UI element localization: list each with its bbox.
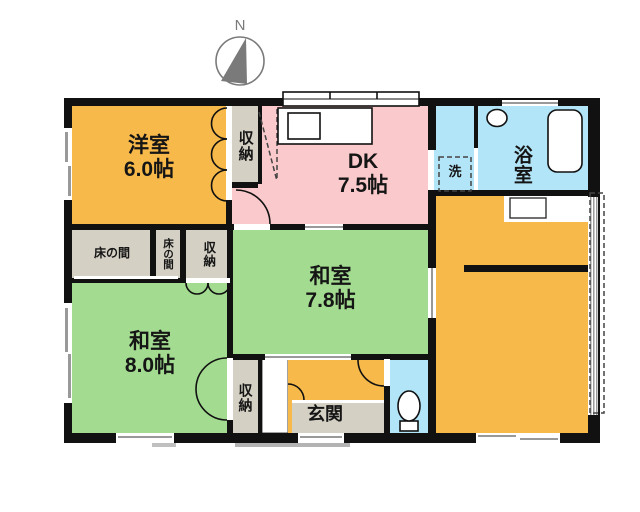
room-size: 8.0帖 xyxy=(125,354,175,377)
room-size: 7.5帖 xyxy=(338,174,388,197)
right-room-counter-sink xyxy=(510,198,546,218)
room-name: 和室 xyxy=(310,265,352,288)
room-name: 洋室 xyxy=(128,134,170,157)
room-name: DK xyxy=(348,150,378,173)
label-washitsu-78: 和室 7.8帖 xyxy=(232,265,429,313)
label-dk: DK 7.5帖 xyxy=(288,150,438,198)
label-washer: 洗 xyxy=(439,165,471,180)
compass-north-label: N xyxy=(225,17,255,34)
label-bathroom: 浴室 xyxy=(505,138,537,192)
vent xyxy=(152,443,176,447)
room-name: 和室 xyxy=(129,330,171,353)
genkan-step xyxy=(292,400,384,403)
dk-washitsu-door-opening xyxy=(234,224,270,230)
label-storage-bottom: 収納 xyxy=(233,368,258,428)
north-arrow xyxy=(221,38,247,84)
closet-door-opening xyxy=(186,278,230,283)
bath-sink xyxy=(487,110,507,127)
label-storage-top: 収納 xyxy=(232,112,258,180)
label-tokonoma-narrow: 床の間 xyxy=(157,231,179,277)
toilet-base xyxy=(400,421,418,431)
bathtub xyxy=(548,110,582,172)
room-size: 6.0帖 xyxy=(124,158,174,181)
label-storage-mid: 収納 xyxy=(196,232,220,276)
room-size: 7.8帖 xyxy=(305,289,355,312)
label-washitsu-80: 和室 8.0帖 xyxy=(72,330,228,378)
porch-step xyxy=(235,443,350,447)
floor-plan: N 洋室 6.0帖 DK 7.5帖 和室 7.8帖 和室 8.0帖 浴室 洗 収… xyxy=(0,0,640,512)
label-western-room: 洋室 6.0帖 xyxy=(72,134,226,182)
label-genkan: 玄関 xyxy=(280,404,370,425)
compass xyxy=(216,37,264,85)
toilet-door-opening xyxy=(384,359,390,386)
toilet-bowl xyxy=(398,391,420,421)
kitchen-sink xyxy=(288,113,320,139)
right-room-floor xyxy=(436,196,588,433)
label-tokonoma-wide: 床の間 xyxy=(74,247,150,261)
